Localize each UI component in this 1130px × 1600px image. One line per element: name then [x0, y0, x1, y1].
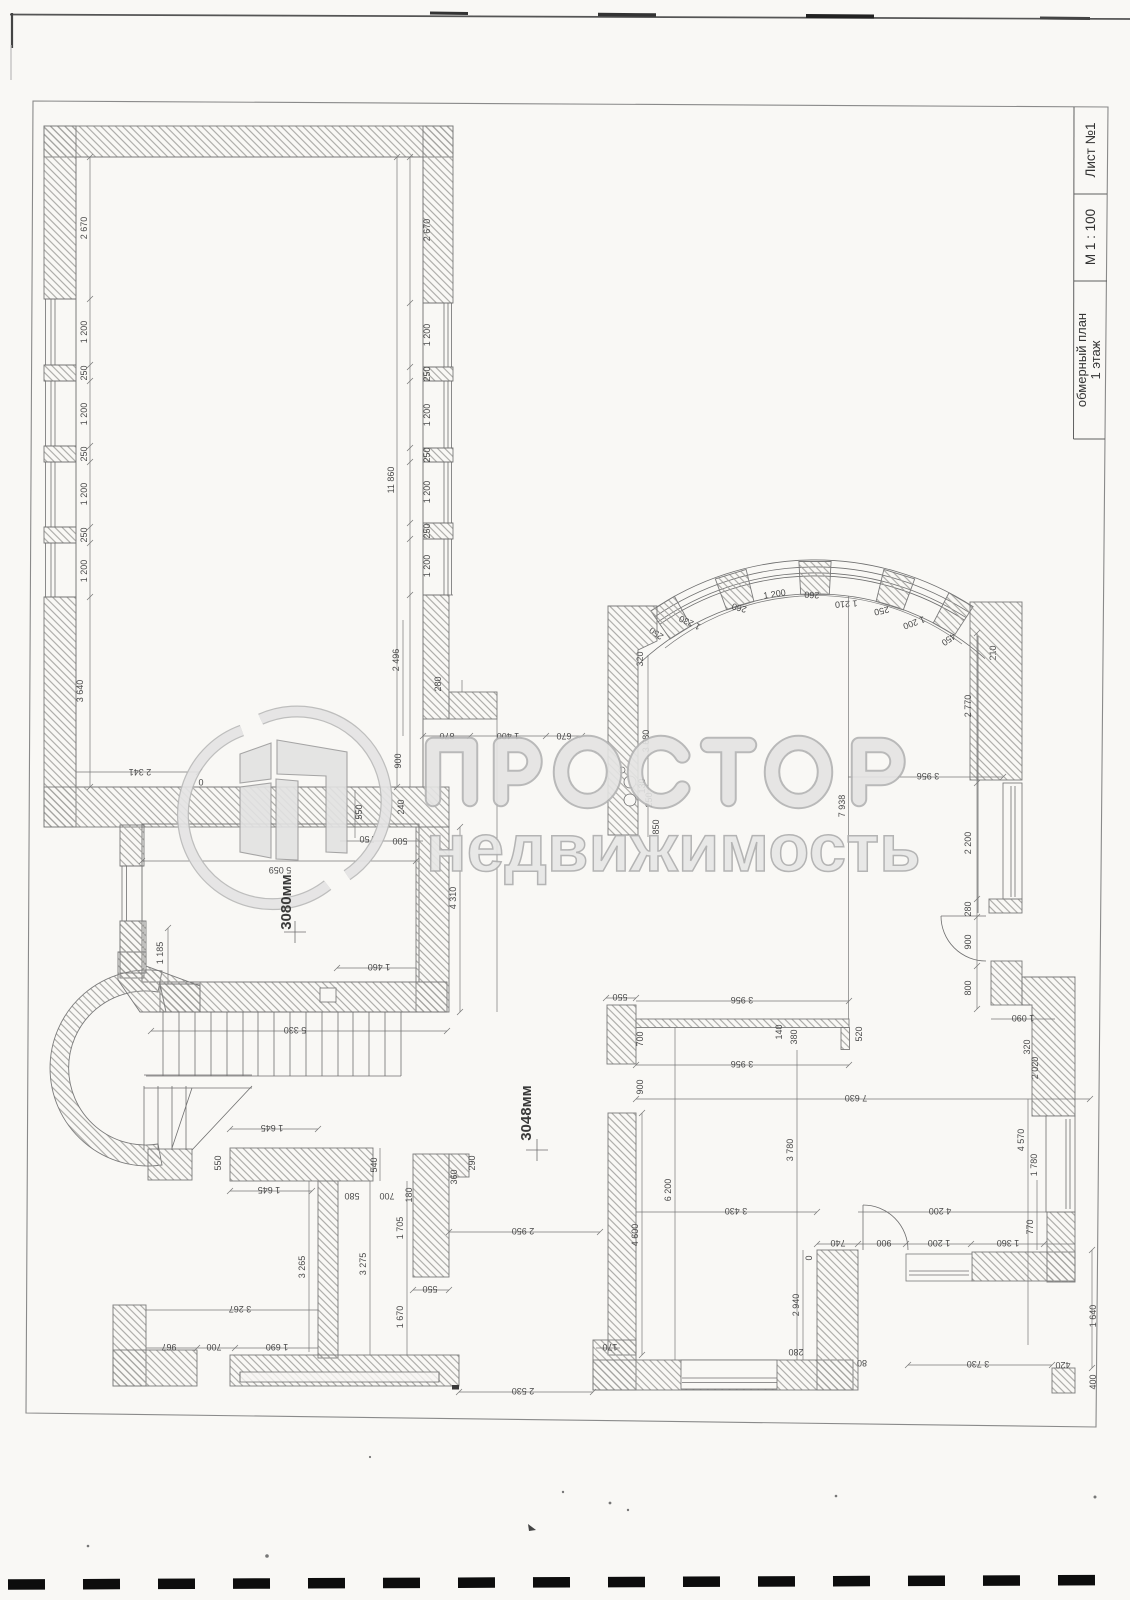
- svg-text:700: 700: [206, 1342, 221, 1352]
- svg-text:2 496: 2 496: [391, 649, 401, 672]
- svg-text:3 780: 3 780: [785, 1139, 795, 1162]
- svg-text:3 430: 3 430: [725, 1206, 748, 1216]
- svg-text:4 570: 4 570: [1016, 1129, 1026, 1152]
- svg-text:4 200: 4 200: [929, 1206, 952, 1216]
- svg-text:3 265: 3 265: [297, 1256, 307, 1279]
- svg-text:2 670: 2 670: [422, 219, 432, 242]
- svg-text:290: 290: [467, 1155, 477, 1170]
- svg-text:1 200: 1 200: [422, 404, 432, 427]
- svg-text:обмерный план: обмерный план: [1074, 313, 1089, 407]
- svg-text:900: 900: [635, 1079, 645, 1094]
- svg-text:180: 180: [404, 1187, 414, 1202]
- svg-text:580: 580: [344, 1191, 359, 1201]
- svg-text:3 275: 3 275: [358, 1253, 368, 1276]
- svg-text:2 940: 2 940: [791, 1294, 801, 1317]
- svg-text:1 200: 1 200: [79, 483, 89, 506]
- svg-text:320: 320: [1022, 1039, 1032, 1054]
- svg-text:800: 800: [963, 980, 973, 995]
- svg-text:5 330: 5 330: [284, 1025, 307, 1035]
- svg-text:1 200: 1 200: [763, 587, 787, 600]
- svg-text:1 645: 1 645: [258, 1185, 281, 1195]
- svg-text:770: 770: [1025, 1219, 1035, 1234]
- svg-text:1 200: 1 200: [79, 403, 89, 426]
- svg-text:1 этаж: 1 этаж: [1088, 340, 1103, 379]
- svg-text:11 860: 11 860: [386, 467, 396, 494]
- svg-text:недвижимость: недвижимость: [426, 811, 921, 886]
- svg-text:1 200: 1 200: [79, 321, 89, 344]
- svg-text:0: 0: [804, 1255, 814, 1260]
- svg-text:1 200: 1 200: [79, 560, 89, 583]
- svg-text:3 956: 3 956: [917, 771, 940, 781]
- svg-text:280: 280: [433, 676, 443, 691]
- svg-text:500: 500: [392, 836, 407, 846]
- svg-text:3080мм: 3080мм: [278, 874, 295, 930]
- svg-text:250: 250: [422, 366, 432, 381]
- svg-text:6 200: 6 200: [663, 1179, 673, 1202]
- svg-text:540: 540: [369, 1157, 379, 1172]
- svg-text:2 341: 2 341: [129, 767, 152, 777]
- svg-text:380: 380: [789, 1029, 799, 1044]
- svg-text:170: 170: [602, 1342, 617, 1352]
- svg-text:1 670: 1 670: [395, 1306, 405, 1329]
- svg-text:1 210: 1 210: [835, 598, 858, 610]
- svg-text:1 200: 1 200: [928, 1238, 951, 1248]
- svg-text:2 020: 2 020: [1030, 1057, 1040, 1080]
- svg-text:700: 700: [379, 1191, 394, 1201]
- svg-text:3 956: 3 956: [731, 995, 754, 1005]
- svg-text:740: 740: [830, 1238, 845, 1248]
- svg-text:900: 900: [963, 934, 973, 949]
- svg-text:250: 250: [79, 446, 89, 461]
- svg-text:280: 280: [963, 901, 973, 916]
- svg-text:3 956: 3 956: [731, 1059, 754, 1069]
- svg-text:250: 250: [422, 447, 432, 462]
- svg-text:1 690: 1 690: [266, 1342, 289, 1352]
- svg-text:Лист №1: Лист №1: [1083, 122, 1098, 177]
- svg-text:550: 550: [422, 1284, 437, 1294]
- svg-text:280: 280: [788, 1347, 803, 1357]
- svg-text:1 200: 1 200: [422, 555, 432, 578]
- svg-text:240: 240: [396, 799, 406, 814]
- svg-text:3 640: 3 640: [75, 680, 85, 703]
- svg-text:1 200: 1 200: [422, 481, 432, 504]
- svg-text:520: 520: [854, 1026, 864, 1041]
- svg-text:1 705: 1 705: [395, 1217, 405, 1240]
- svg-text:1 185: 1 185: [155, 942, 165, 965]
- svg-text:3 730: 3 730: [967, 1359, 990, 1369]
- svg-text:2 200: 2 200: [963, 832, 973, 855]
- svg-text:360: 360: [449, 1169, 459, 1184]
- svg-text:4 600: 4 600: [630, 1224, 640, 1247]
- svg-text:1 780: 1 780: [1029, 1154, 1039, 1177]
- svg-text:2 770: 2 770: [963, 695, 973, 718]
- svg-text:967: 967: [161, 1342, 176, 1352]
- svg-text:3 267: 3 267: [229, 1304, 252, 1314]
- svg-text:1 090: 1 090: [1012, 1013, 1035, 1023]
- svg-text:700: 700: [635, 1031, 645, 1046]
- svg-text:0: 0: [198, 777, 203, 787]
- svg-text:2 530: 2 530: [512, 1386, 535, 1396]
- svg-text:900: 900: [876, 1238, 891, 1248]
- svg-text:250: 250: [79, 365, 89, 380]
- svg-text:М 1 : 100: М 1 : 100: [1083, 209, 1098, 265]
- svg-text:900: 900: [393, 753, 403, 768]
- svg-text:420: 420: [1055, 1360, 1070, 1370]
- svg-text:3048мм: 3048мм: [518, 1085, 535, 1141]
- svg-text:5 059: 5 059: [269, 865, 292, 875]
- svg-text:7 630: 7 630: [845, 1093, 868, 1103]
- svg-text:550: 550: [354, 804, 364, 819]
- svg-text:250: 250: [422, 523, 432, 538]
- svg-text:140: 140: [774, 1024, 784, 1039]
- svg-text:670: 670: [556, 731, 571, 741]
- svg-text:1 460: 1 460: [368, 962, 391, 972]
- svg-text:1 200: 1 200: [902, 614, 927, 631]
- svg-text:260: 260: [804, 590, 820, 601]
- svg-text:1 360: 1 360: [997, 1238, 1020, 1248]
- svg-text:250: 250: [79, 527, 89, 542]
- svg-text:1 645: 1 645: [261, 1123, 284, 1133]
- svg-text:550: 550: [213, 1155, 223, 1170]
- svg-text:250: 250: [873, 604, 890, 617]
- svg-text:1 200: 1 200: [422, 324, 432, 347]
- svg-text:4 310: 4 310: [448, 887, 458, 910]
- svg-text:550: 550: [612, 992, 627, 1002]
- svg-text:2 950: 2 950: [512, 1226, 535, 1236]
- svg-text:2 670: 2 670: [79, 217, 89, 240]
- svg-text:80: 80: [857, 1358, 867, 1368]
